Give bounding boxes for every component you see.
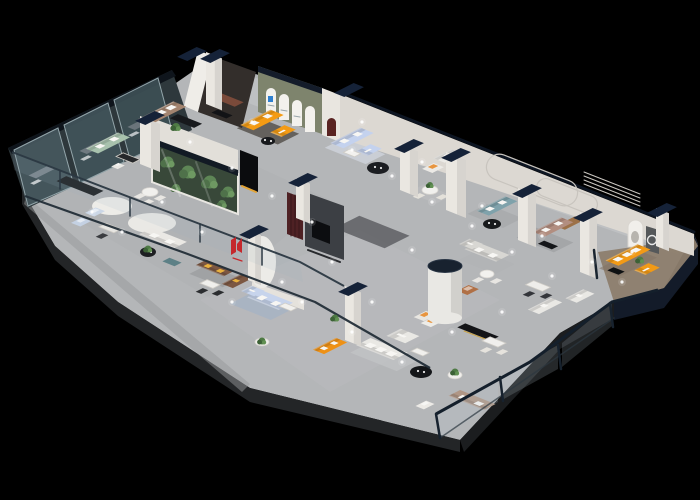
oval-table-north-item bbox=[374, 166, 376, 168]
ceiling-spotlight bbox=[270, 194, 273, 197]
ceiling-spotlight bbox=[410, 248, 413, 251]
plants-6-leaf bbox=[426, 184, 430, 188]
ceiling-spotlight bbox=[430, 200, 433, 203]
plants-6-leaf bbox=[430, 184, 434, 188]
ceiling-spotlight bbox=[500, 310, 503, 313]
oval-table-se-item bbox=[417, 370, 419, 372]
plants-0-leaf bbox=[170, 125, 176, 131]
ceiling-spotlight bbox=[590, 260, 593, 263]
ceiling-spotlight bbox=[510, 250, 513, 253]
maroon-arch-inset bbox=[327, 118, 336, 136]
ceiling-spotlight bbox=[310, 220, 313, 223]
coffee-table-orange-north bbox=[261, 137, 275, 145]
ceiling-spotlight bbox=[620, 280, 623, 283]
oval-table-teal-item bbox=[488, 222, 490, 224]
plants-1-leaf bbox=[143, 248, 148, 253]
plants-5-leaf bbox=[640, 259, 644, 263]
ceiling-spotlight bbox=[540, 234, 543, 237]
ceiling-spotlight bbox=[300, 300, 303, 303]
ceiling-spotlight bbox=[390, 174, 393, 177]
ceiling-spotlight bbox=[330, 260, 333, 263]
pier-center-north-shade bbox=[410, 148, 418, 197]
coffee-table-orange-north-item bbox=[270, 140, 272, 142]
plants-0-leaf bbox=[176, 126, 181, 131]
ceiling-spotlight bbox=[470, 224, 473, 227]
pier-right-tip-shade bbox=[663, 211, 669, 251]
ceiling-spotlight bbox=[350, 148, 353, 151]
ceiling-spotlight bbox=[280, 280, 283, 283]
oval-table-teal bbox=[483, 219, 501, 229]
pier-nw-shade bbox=[151, 120, 160, 172]
ceiling-spotlight bbox=[160, 200, 163, 203]
ceiling-spotlight bbox=[188, 140, 191, 143]
plants-1-leaf bbox=[148, 248, 152, 252]
ceiling-spotlight bbox=[450, 330, 453, 333]
plants-4-leaf bbox=[450, 371, 455, 376]
showroom-render-stage bbox=[0, 0, 700, 500]
ceiling-spotlight bbox=[630, 250, 633, 253]
plants-2-leaf bbox=[257, 340, 262, 345]
ceiling-spotlight bbox=[370, 300, 373, 303]
ceiling-spotlight bbox=[200, 230, 203, 233]
pier-south-shade bbox=[354, 290, 361, 347]
plants-3-leaf bbox=[335, 317, 339, 321]
ceiling-spotlight bbox=[230, 300, 233, 303]
plants-2-leaf bbox=[262, 340, 266, 344]
plants-5-leaf bbox=[635, 259, 640, 264]
ceiling-spotlight bbox=[250, 120, 253, 123]
coffee-table-orange-north-item bbox=[264, 139, 266, 141]
cylinder-column-shade bbox=[451, 266, 462, 318]
arch-niche-3 bbox=[292, 100, 302, 126]
showroom-floorplan-svg bbox=[0, 0, 700, 500]
oval-table-se-item bbox=[423, 371, 425, 373]
pier-center-shade bbox=[304, 181, 310, 224]
ceiling-spotlight bbox=[90, 210, 93, 213]
ceiling-spotlight bbox=[360, 120, 363, 123]
right-tip-arch-vase bbox=[631, 231, 639, 243]
ceiling-spotlight bbox=[350, 330, 353, 333]
ceiling-spotlight bbox=[120, 230, 123, 233]
plants-3-leaf bbox=[330, 317, 335, 322]
ceiling-spotlight bbox=[400, 360, 403, 363]
arch-niche-4 bbox=[305, 106, 315, 132]
oval-table-north bbox=[367, 162, 389, 174]
ceiling-spotlight bbox=[550, 274, 553, 277]
cylinder-column-base bbox=[428, 312, 462, 324]
brand-plaque-blue bbox=[268, 96, 273, 102]
plants-4-leaf bbox=[455, 371, 459, 375]
round-table-grey-east bbox=[480, 270, 494, 278]
pier-ne-1-shade bbox=[457, 156, 466, 218]
oval-table-north-item bbox=[380, 167, 382, 169]
pier-north-corner-shade bbox=[215, 56, 222, 111]
oval-table-teal-item bbox=[494, 223, 496, 225]
ceiling-spotlight bbox=[420, 160, 423, 163]
ceiling-spotlight bbox=[480, 204, 483, 207]
ceiling-spotlight bbox=[230, 166, 233, 169]
pier-ne-2-shade bbox=[528, 192, 536, 247]
red-brand-mark-left bbox=[231, 237, 236, 255]
cylinder-column-top bbox=[428, 260, 462, 273]
